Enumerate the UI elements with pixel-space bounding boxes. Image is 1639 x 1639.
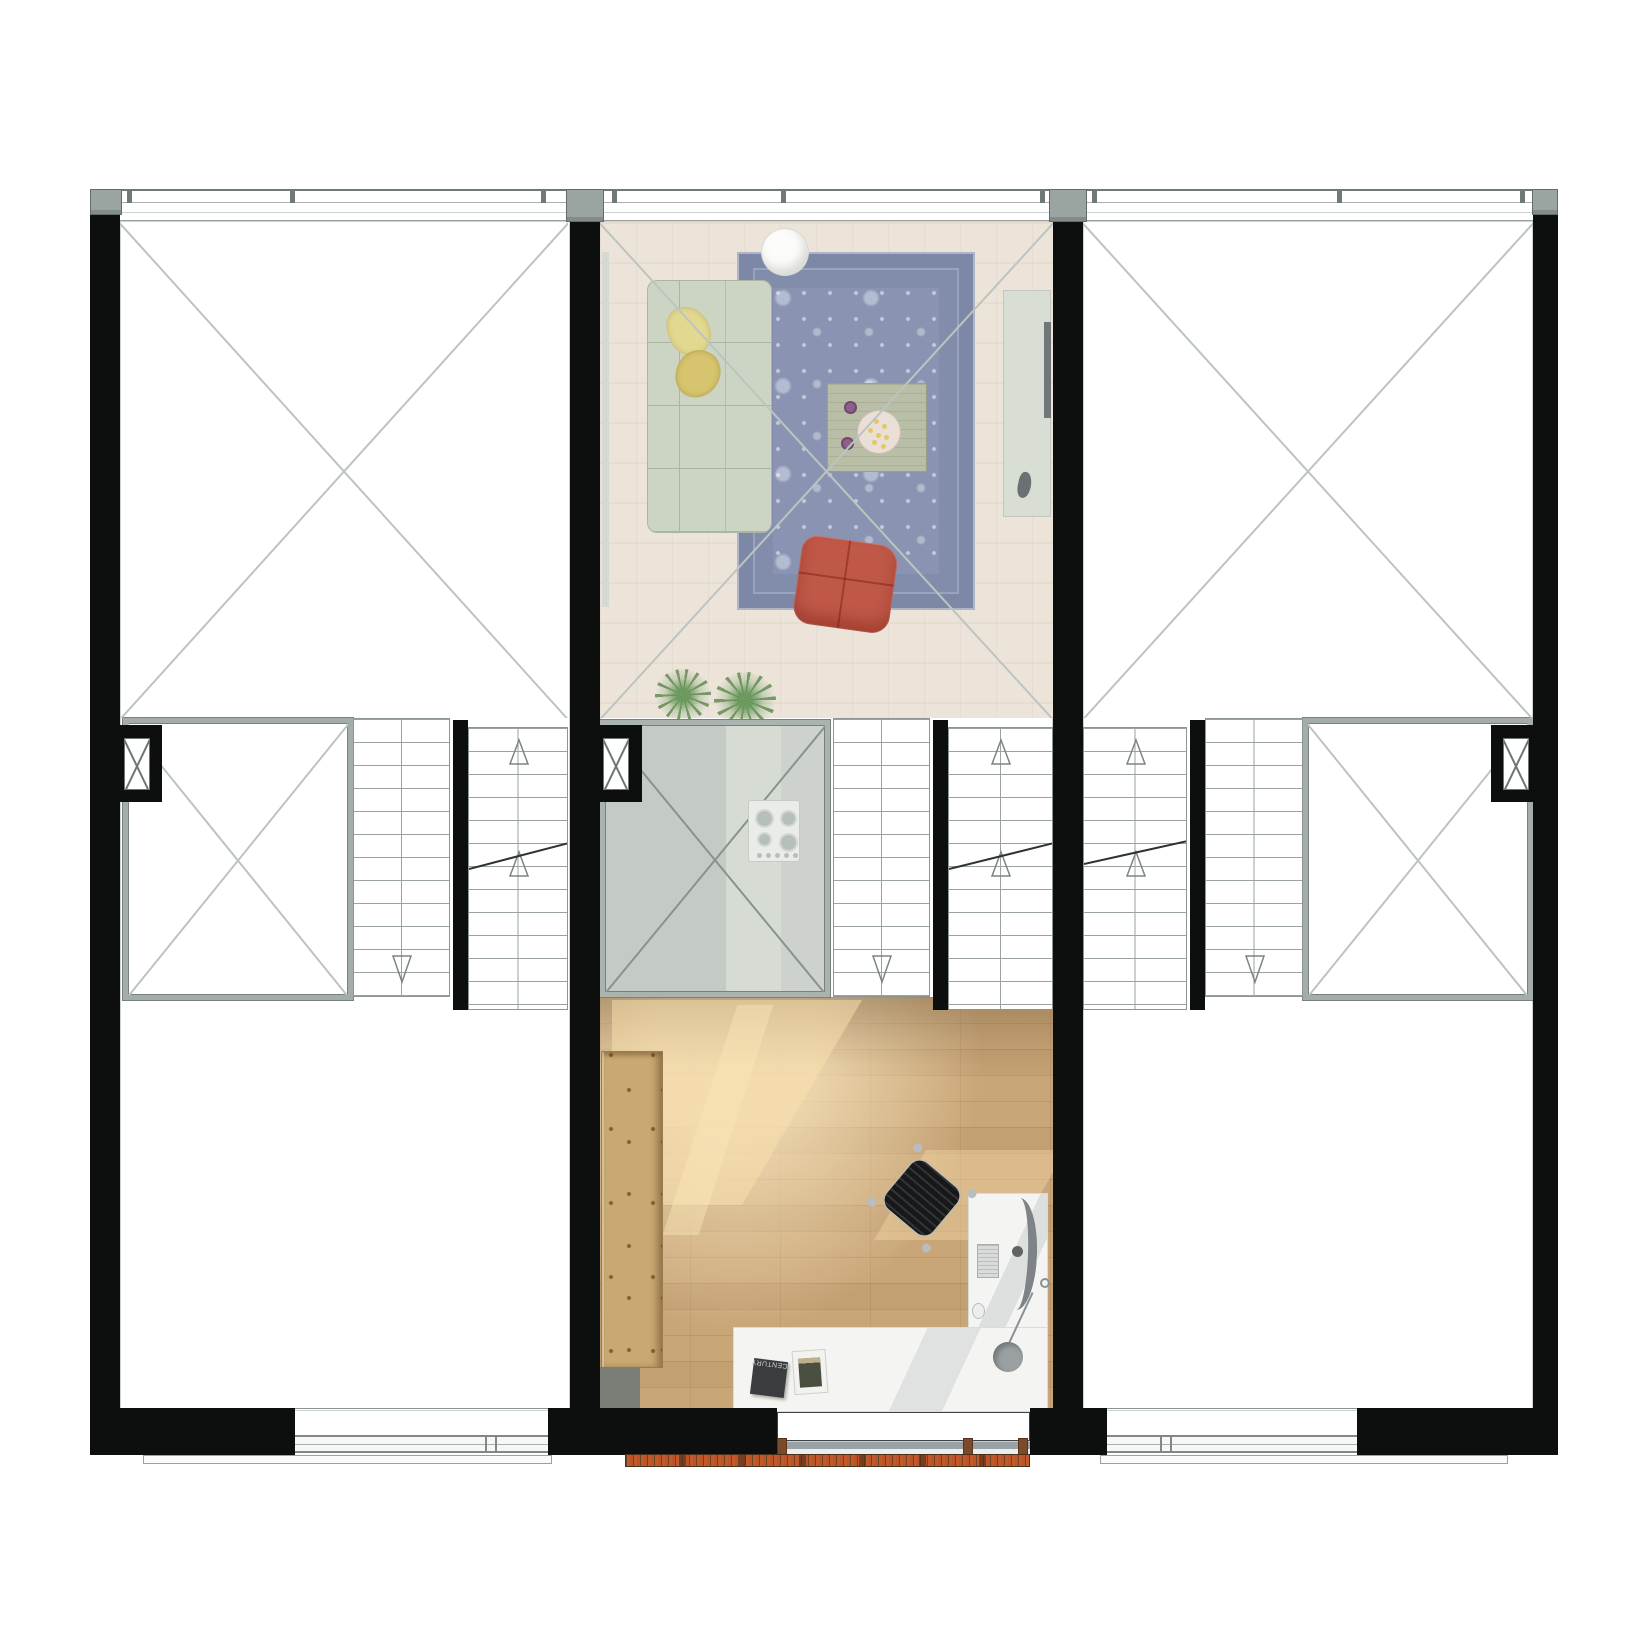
window-mullion-tick	[1337, 191, 1342, 203]
entry-glazing	[777, 1412, 1030, 1441]
shaft-box-right	[1503, 738, 1529, 790]
window-inner-line	[120, 212, 1533, 213]
entry-glazing-frame	[777, 1441, 1030, 1449]
facade-column-cap	[566, 189, 604, 222]
brick-entry-strip	[625, 1454, 1030, 1467]
window-mullion-tick	[1092, 191, 1097, 203]
window-mullion	[485, 1435, 497, 1453]
window-mullion-tick	[1520, 191, 1525, 203]
cooktop-burner	[781, 835, 796, 850]
floor-plan: CENTURY	[0, 0, 1639, 1639]
cooktop-knobs	[757, 853, 762, 858]
monitor-stand	[1012, 1246, 1023, 1257]
stair-down-arrow	[871, 954, 893, 984]
stair-up-arrow	[1125, 738, 1147, 766]
party-wall-left	[570, 220, 600, 1455]
book-photo-cover	[798, 1357, 822, 1387]
desk-lamp-shade	[993, 1342, 1023, 1372]
stair-up-right-unit	[1083, 727, 1187, 1010]
stair-down-left-unit	[353, 718, 450, 997]
stair-divider-wall-left	[453, 720, 468, 1010]
door-post	[777, 1438, 787, 1455]
stair-down-middle-unit	[833, 718, 930, 997]
void-cross-living-room	[600, 222, 1053, 718]
stair-up-arrow	[990, 738, 1012, 766]
bottom-window-right	[1107, 1408, 1357, 1456]
window-frame	[295, 1435, 548, 1453]
window-mullion-tick	[612, 191, 617, 203]
window-interior-line	[1107, 1408, 1357, 1409]
stair-up-middle-unit	[948, 727, 1053, 1010]
desk-lamp-hook	[1040, 1278, 1050, 1288]
stair-divider-wall-right	[1190, 720, 1205, 1010]
stair-down-arrow	[391, 954, 413, 984]
bottom-wall-segment	[90, 1408, 295, 1455]
bookshelf	[602, 1052, 662, 1367]
bottom-wall-segment	[1357, 1408, 1558, 1455]
shaft-box-left	[124, 738, 150, 790]
window-mullion-tick	[127, 191, 132, 203]
stair-up-left-unit	[468, 727, 568, 1010]
facade-column-cap	[1532, 189, 1558, 215]
window-mullion-tick	[781, 191, 786, 203]
window-outer-line	[120, 189, 1533, 191]
void-cross-top-left-room	[120, 222, 568, 718]
book-photo	[792, 1349, 829, 1395]
window-frame	[1107, 1435, 1357, 1453]
exterior-wall-left	[90, 213, 120, 1455]
exterior-wall-right	[1533, 213, 1558, 1455]
void-cross-top-right-room	[1083, 222, 1533, 718]
cooktop-burner	[759, 834, 770, 845]
stair-up-arrow	[508, 738, 530, 766]
facade-column-cap	[1049, 189, 1087, 222]
window-sill-left	[143, 1455, 552, 1464]
cooktop	[748, 800, 800, 862]
cooktop-burner	[757, 811, 772, 826]
door-post	[963, 1438, 973, 1455]
window-mullion	[1160, 1435, 1172, 1453]
facade-column-cap	[90, 189, 122, 215]
window-sill-right	[1100, 1455, 1508, 1464]
cooktop-burner	[782, 812, 795, 825]
stair-down-arrow	[1244, 954, 1266, 984]
door-post	[1018, 1438, 1028, 1455]
bottom-window-left	[295, 1408, 548, 1456]
window-glass-line	[120, 202, 1533, 203]
window-interior-line	[295, 1408, 548, 1409]
stair-down-right-unit	[1205, 718, 1303, 997]
shaft-box-middle	[603, 738, 629, 790]
book-century: CENTURY	[750, 1358, 788, 1398]
window-mullion-tick	[1040, 191, 1045, 203]
book-century-label: CENTURY	[752, 1358, 788, 1383]
keyboard	[977, 1244, 999, 1278]
mouse	[972, 1303, 985, 1319]
window-mullion-tick	[541, 191, 546, 203]
party-wall-right	[1053, 220, 1083, 1455]
bookshelf-shadow	[600, 1367, 640, 1411]
top-window-band	[120, 188, 1533, 222]
window-mullion-tick	[290, 191, 295, 203]
stair-divider-wall-middle	[933, 720, 948, 1010]
